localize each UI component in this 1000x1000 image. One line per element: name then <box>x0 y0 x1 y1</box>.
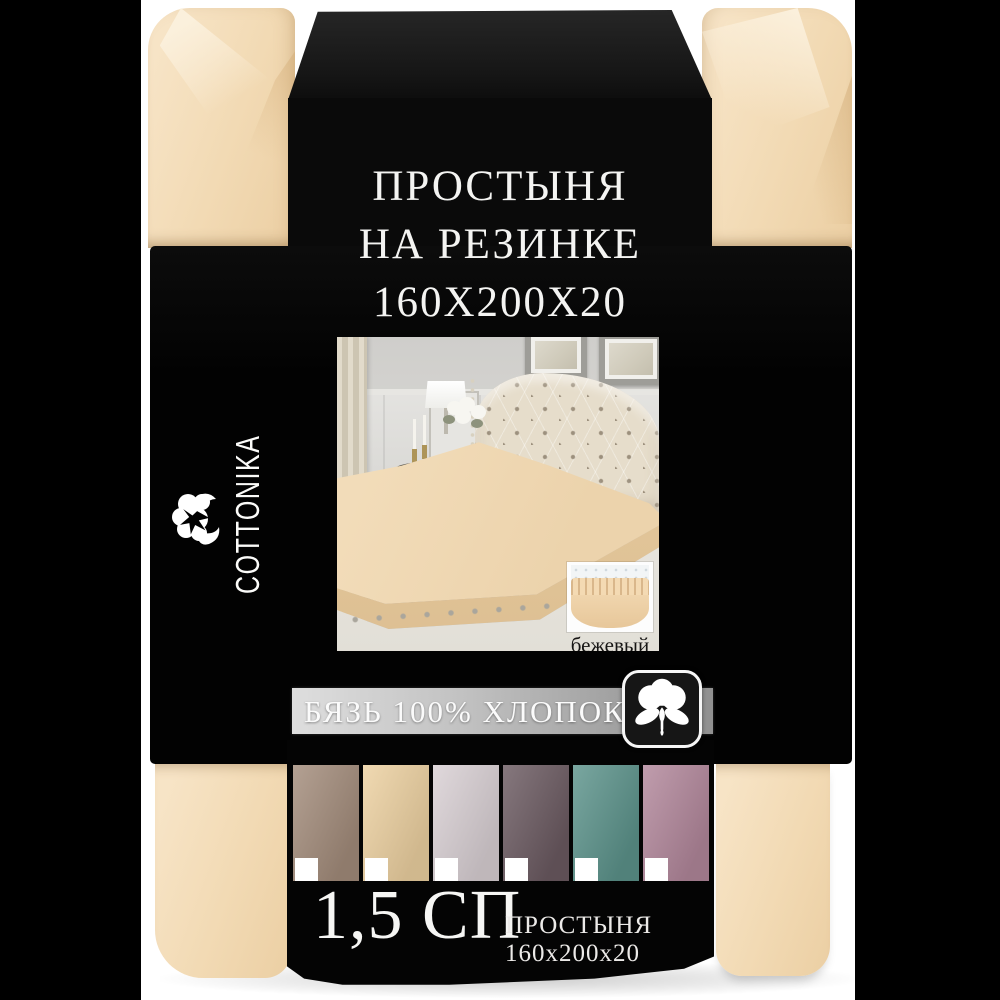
sleeve-top-face <box>288 10 712 100</box>
cotton-badge <box>622 670 702 748</box>
size-label: 1,5 СП <box>313 876 521 956</box>
title-line-2: НА РЕЗИНКЕ <box>288 216 712 274</box>
frame-art <box>609 343 653 375</box>
color-swatch-4 <box>503 765 569 881</box>
flower-bouquet <box>441 397 489 437</box>
product-photo-canvas: 1,5 СП ПРОСТЫНЯ 160x200x20 ПРОСТЫНЯ НА Р… <box>0 0 1000 1000</box>
right-black-bar <box>855 0 1000 1000</box>
left-black-bar <box>0 0 141 1000</box>
inset-sheet-corner <box>571 595 649 628</box>
swatch-window <box>295 858 318 881</box>
color-name-caption: бежевый <box>565 633 655 651</box>
cotton-flower-icon <box>169 489 225 549</box>
bottom-caption: ПРОСТЫНЯ 160x200x20 <box>505 912 714 968</box>
folded-sheet-fabric-bottom-right <box>716 762 830 976</box>
color-swatch-3 <box>433 765 499 881</box>
color-swatch-2 <box>363 765 429 881</box>
title-line-3: 160X200X20 <box>288 274 712 332</box>
folded-sheet-fabric-top-left <box>148 8 295 248</box>
folded-sheet-fabric-top-right <box>702 8 852 248</box>
color-inset-photo <box>567 562 653 632</box>
brand-name: COTTONIKA <box>229 434 267 594</box>
candle <box>423 415 426 449</box>
color-swatch-1 <box>293 765 359 881</box>
candle <box>413 419 416 449</box>
swatch-window <box>435 858 458 881</box>
color-swatch-6 <box>643 765 709 881</box>
swatch-window <box>645 858 668 881</box>
swatch-window <box>365 858 388 881</box>
swatch-window <box>575 858 598 881</box>
folded-sheet-fabric-bottom-left <box>155 762 291 978</box>
picture-frame-right <box>599 337 659 385</box>
title-line-1: ПРОСТЫНЯ <box>288 158 712 216</box>
sleeve-front-lower-panel: 1,5 СП ПРОСТЫНЯ 160x200x20 <box>287 740 714 986</box>
cotton-boll-icon <box>625 673 699 745</box>
product-title: ПРОСТЫНЯ НА РЕЗИНКЕ 160X200X20 <box>288 158 712 332</box>
color-swatch-5 <box>573 765 639 881</box>
bedroom-photo: бежевый <box>337 337 659 651</box>
frame-art <box>535 341 577 369</box>
swatch-window <box>505 858 528 881</box>
inset-elastic-ruffle <box>571 578 649 596</box>
